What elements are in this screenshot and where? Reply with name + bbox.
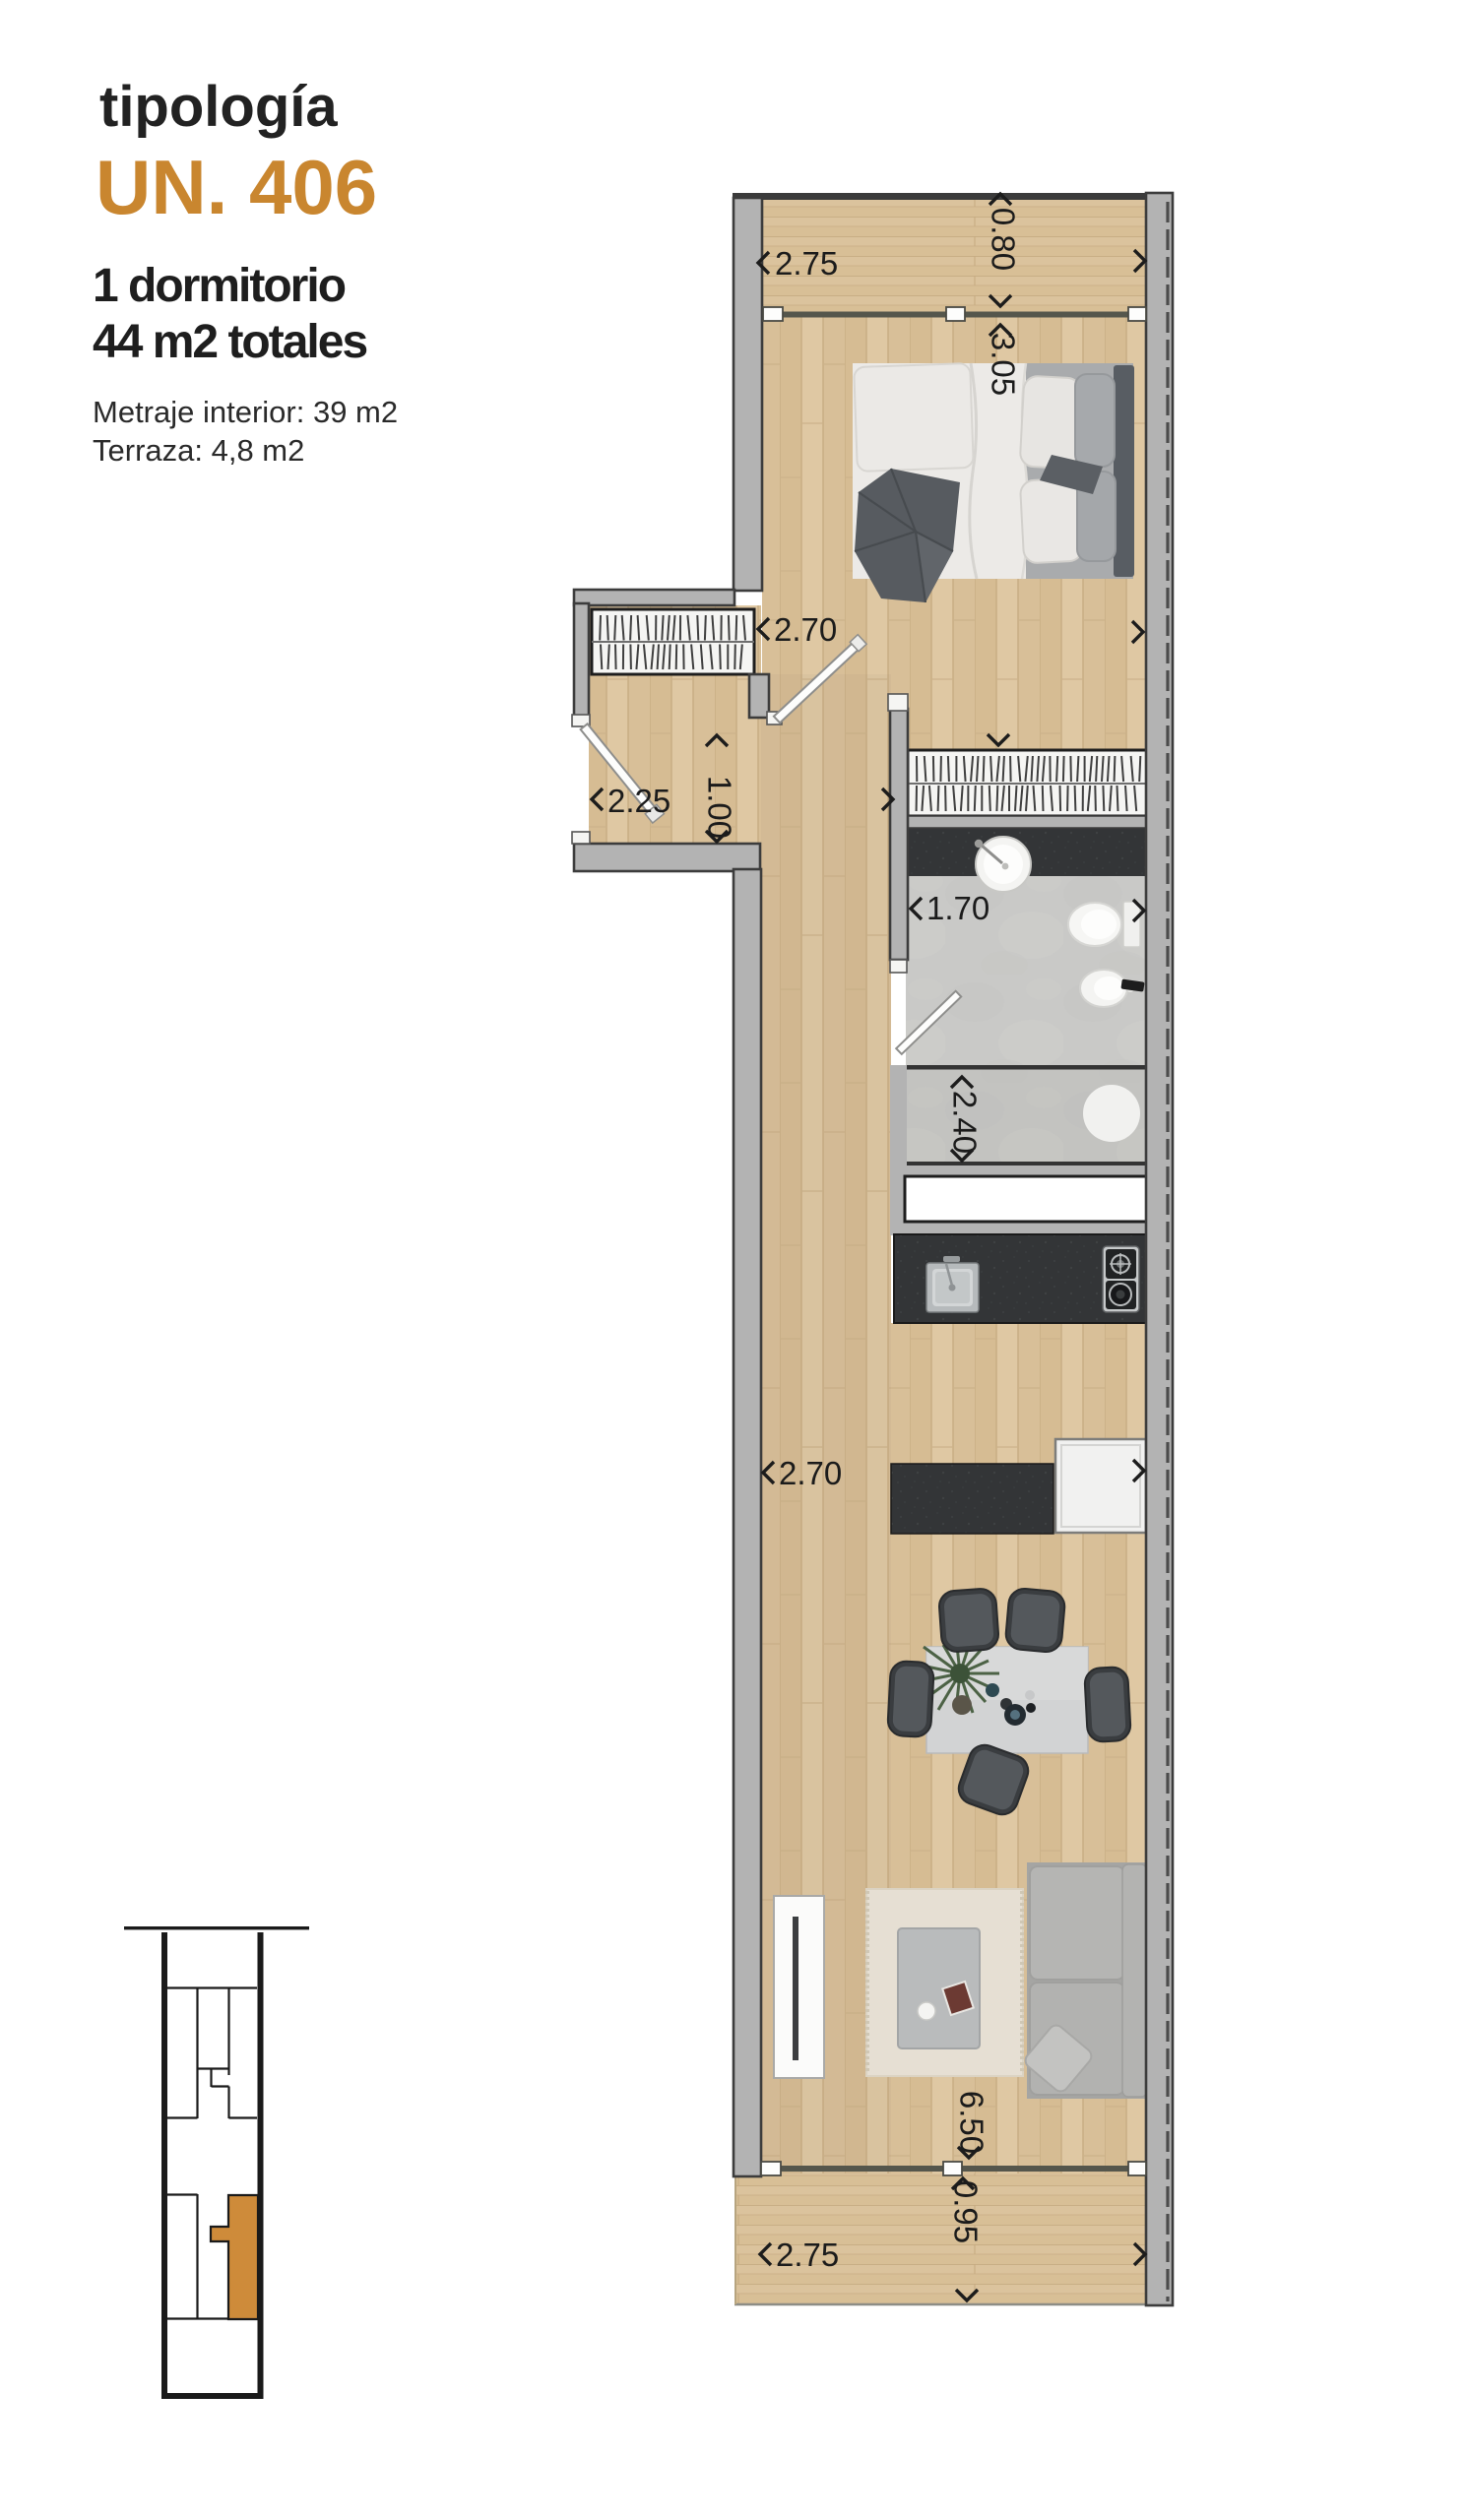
svg-text:3.05: 3.05 — [985, 333, 1021, 396]
svg-text:6.50: 6.50 — [953, 2091, 989, 2154]
svg-text:2.75: 2.75 — [776, 2236, 839, 2273]
svg-text:2.75: 2.75 — [775, 245, 838, 282]
svg-text:2.25: 2.25 — [607, 783, 670, 819]
svg-text:2.70: 2.70 — [779, 1455, 842, 1491]
svg-text:1.70: 1.70 — [926, 890, 989, 926]
svg-text:2.40: 2.40 — [946, 1091, 983, 1154]
svg-text:2.70: 2.70 — [774, 611, 837, 648]
svg-text:1.00: 1.00 — [701, 776, 737, 839]
svg-text:0.80: 0.80 — [985, 208, 1021, 271]
